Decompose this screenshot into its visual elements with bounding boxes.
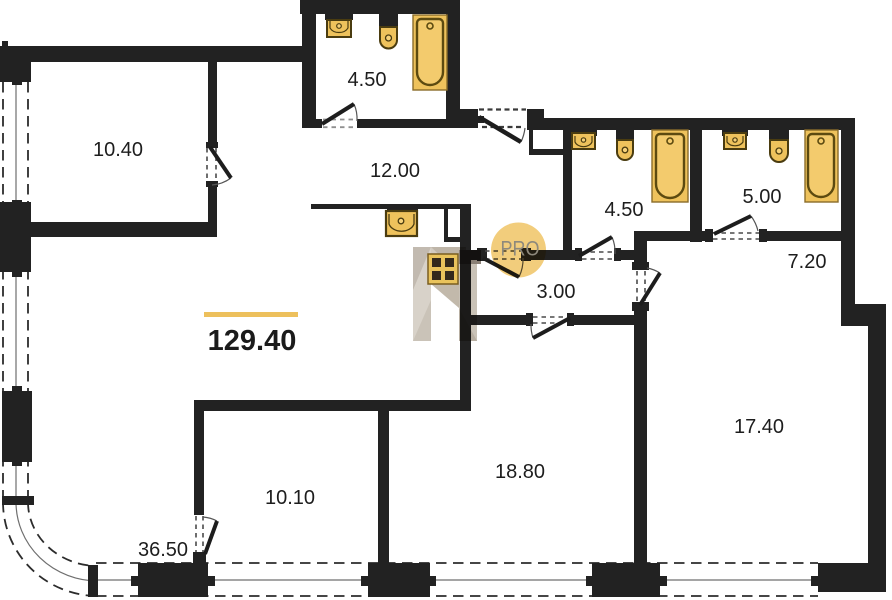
svg-text:PRO: PRO: [501, 237, 540, 261]
svg-text:17.40: 17.40: [734, 416, 784, 438]
svg-text:10.10: 10.10: [265, 487, 315, 509]
svg-text:7.20: 7.20: [788, 251, 827, 273]
svg-text:10.40: 10.40: [93, 139, 143, 161]
svg-text:12.00: 12.00: [370, 160, 420, 182]
svg-text:129.40: 129.40: [208, 325, 297, 357]
svg-text:5.00: 5.00: [743, 186, 782, 208]
svg-text:4.50: 4.50: [348, 69, 387, 91]
svg-text:18.80: 18.80: [495, 461, 545, 483]
svg-text:36.50: 36.50: [138, 539, 188, 561]
svg-text:4.50: 4.50: [605, 199, 644, 221]
svg-text:3.00: 3.00: [537, 281, 576, 303]
